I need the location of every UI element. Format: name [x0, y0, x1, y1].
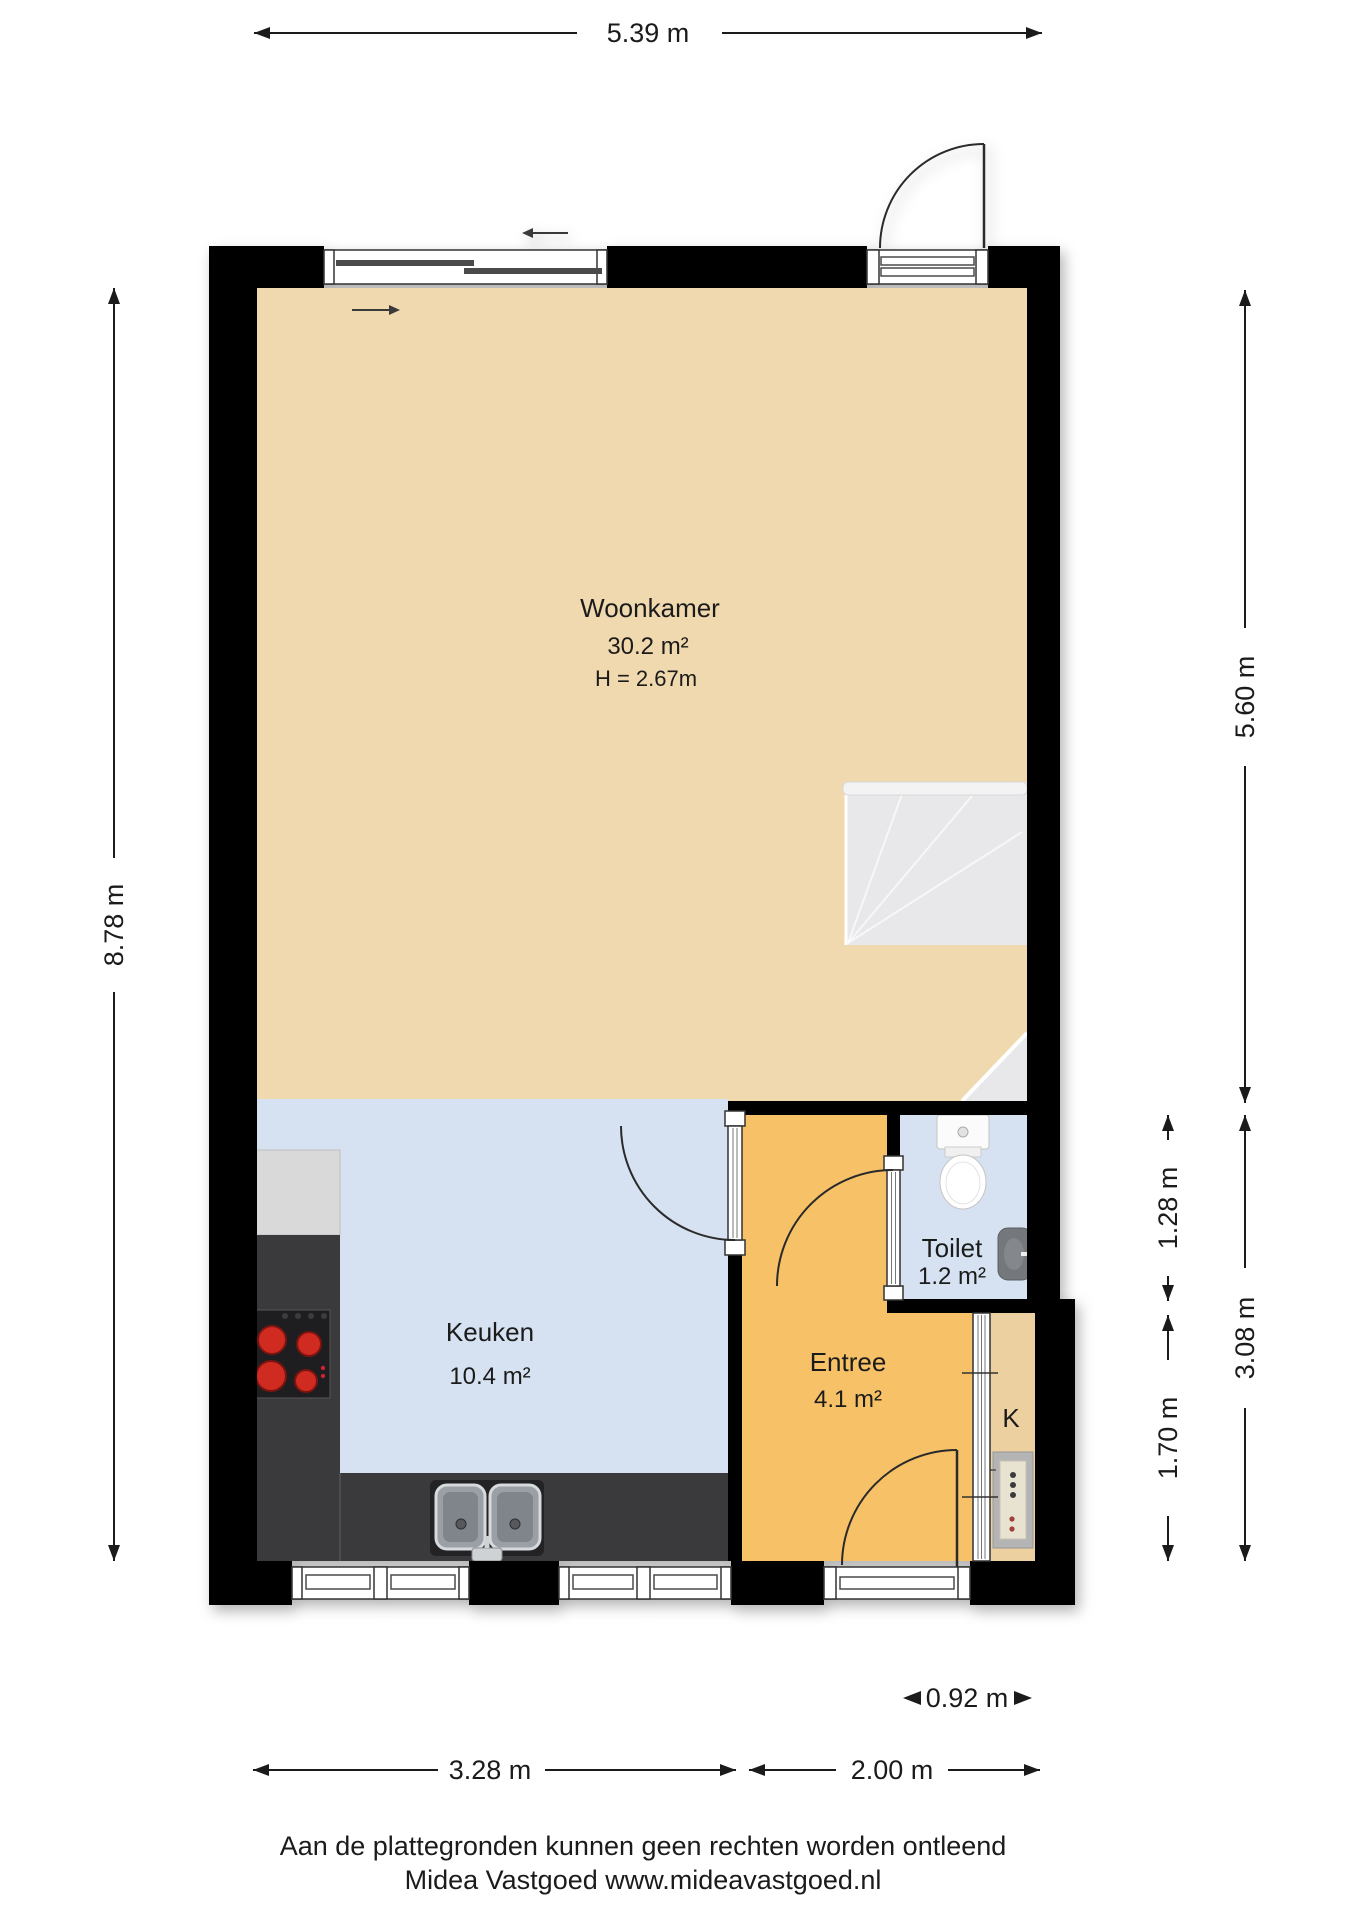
- window-glazing: [391, 1575, 455, 1589]
- window-post: [459, 1567, 469, 1599]
- dimension-left-height: 8.78 m: [99, 288, 129, 1561]
- dimension-right-upper-label: 5.60 m: [1230, 656, 1260, 739]
- burner: [297, 1332, 321, 1356]
- faucet-icon: [472, 1548, 502, 1561]
- door-jamb: [725, 1240, 745, 1255]
- sink-icon: [430, 1480, 544, 1561]
- door-jamb: [884, 1156, 903, 1170]
- floorplan-drawing: Woonkamer 30.2 m² H = 2.67m Keuken 10.4 …: [209, 144, 1075, 1605]
- sink-drain: [456, 1519, 466, 1529]
- threshold-line: [881, 257, 974, 265]
- wall-bottom: [731, 1561, 824, 1605]
- woonkamer-label: Woonkamer: [580, 593, 720, 623]
- wall-right-lower: [1035, 1299, 1075, 1605]
- meter-dot: [1010, 1482, 1016, 1488]
- floorplan-canvas: Woonkamer 30.2 m² H = 2.67m Keuken 10.4 …: [0, 0, 1358, 1920]
- dimension-bottom-keuken-label: 3.28 m: [449, 1755, 532, 1785]
- entree-area: 4.1 m²: [814, 1386, 882, 1413]
- burner: [258, 1326, 286, 1354]
- wall-bottom: [970, 1561, 1075, 1605]
- dimension-bottom-keuken: 3.28 m: [253, 1755, 736, 1785]
- dimension-right-lower-total: 3.08 m: [1230, 1115, 1260, 1561]
- cooktop-knob: [295, 1313, 301, 1319]
- door-leaf-closed: [887, 1170, 900, 1286]
- dimension-toilet-depth: 1.28 m: [1153, 1115, 1183, 1301]
- meter-dot: [1010, 1492, 1016, 1498]
- window-frame: [324, 250, 607, 284]
- window-glazing: [654, 1575, 717, 1589]
- meter-dot-red: [1009, 1526, 1014, 1531]
- sink-drain: [510, 1519, 520, 1529]
- window-glazing: [573, 1575, 633, 1589]
- wall-top: [607, 246, 867, 288]
- window-post: [597, 250, 607, 284]
- cooktop-icon: [253, 1310, 330, 1398]
- door-jamb: [884, 1286, 903, 1300]
- dimension-left-label: 8.78 m: [99, 884, 129, 967]
- dimension-top-width: 5.39 m: [254, 18, 1042, 48]
- door-jamb: [725, 1111, 745, 1126]
- wall-toilet-bottom: [887, 1299, 1035, 1313]
- entree-label: Entree: [810, 1347, 887, 1377]
- window-post: [292, 1567, 302, 1599]
- dimension-right-upper: 5.60 m: [1230, 290, 1260, 1103]
- door-top: [867, 144, 988, 284]
- door-jamb: [824, 1567, 836, 1599]
- window-mullion: [374, 1567, 387, 1599]
- wall-left: [209, 246, 257, 1605]
- sliding-panel: [464, 268, 602, 274]
- burner: [295, 1370, 317, 1392]
- window-bottom-right: [559, 1567, 731, 1599]
- door-threshold: [867, 250, 988, 284]
- meter-dot-red: [1009, 1516, 1014, 1521]
- keuken-area: 10.4 m²: [449, 1363, 530, 1390]
- footer-disclaimer: Aan de plattegronden kunnen geen rechten…: [280, 1831, 1007, 1861]
- dimension-top-label: 5.39 m: [607, 18, 690, 48]
- dimension-toilet-label: 1.28 m: [1153, 1167, 1183, 1250]
- dimension-bottom-entree: 2.00 m: [749, 1755, 1040, 1785]
- stairs-handrail-lip: [843, 782, 1027, 795]
- door-jamb: [976, 250, 988, 284]
- wall-keuken-entree: [728, 1247, 742, 1561]
- window-post: [721, 1567, 731, 1599]
- dimension-bottom-entree-label: 2.00 m: [851, 1755, 934, 1785]
- slide-direction-left-icon: [522, 228, 568, 238]
- door-jamb: [867, 250, 879, 284]
- woonkamer-area: 30.2 m²: [607, 633, 688, 660]
- cooktop-knob: [308, 1313, 314, 1319]
- footer: Aan de plattegronden kunnen geen rechten…: [280, 1831, 1007, 1895]
- toilet-label: Toilet: [922, 1233, 983, 1263]
- dimension-right-lower-label: 3.08 m: [1230, 1297, 1260, 1380]
- kitchen-cabinet: [252, 1150, 340, 1235]
- dimension-kast-label: 1.70 m: [1153, 1397, 1183, 1480]
- window-post: [324, 250, 334, 284]
- window-post: [559, 1567, 569, 1599]
- sink-basin-inner: [443, 1492, 478, 1542]
- wall-bottom: [209, 1561, 292, 1605]
- wall-bottom: [469, 1561, 559, 1605]
- door-leaf-closed: [728, 1126, 742, 1240]
- wall-entree-toilet: [887, 1101, 900, 1163]
- window-mullion: [637, 1567, 650, 1599]
- door-jamb: [958, 1567, 970, 1599]
- cooktop-knob: [321, 1313, 327, 1319]
- stairs-flight: [845, 782, 1027, 945]
- dimension-bottom-kast-label: 0.92 m: [926, 1683, 1009, 1713]
- cooktop-indicator: [321, 1366, 325, 1370]
- floorplan-page: Woonkamer 30.2 m² H = 2.67m Keuken 10.4 …: [0, 0, 1358, 1920]
- woonkamer-floor: [257, 288, 1027, 1101]
- sliding-panel: [336, 260, 474, 266]
- window-bottom-left: [292, 1567, 469, 1599]
- wall-interior-horizontal: [728, 1101, 1035, 1115]
- sink-basin-inner: [497, 1492, 533, 1542]
- cooktop-knob: [282, 1313, 288, 1319]
- door-swing-arc: [880, 144, 984, 248]
- kast-label: K: [1002, 1403, 1020, 1433]
- dimension-bottom-kast: 0.92 m: [903, 1683, 1032, 1713]
- wall-right-upper: [1027, 246, 1060, 1313]
- meter-dot: [1010, 1472, 1016, 1478]
- keuken-label: Keuken: [446, 1317, 534, 1347]
- window-glazing: [306, 1575, 370, 1589]
- woonkamer-ceiling-height: H = 2.67m: [595, 666, 697, 691]
- meter-box: [988, 1452, 1033, 1548]
- dimension-kast-depth: 1.70 m: [1153, 1315, 1183, 1561]
- threshold-line: [881, 268, 974, 276]
- toilet-area: 1.2 m²: [918, 1263, 986, 1290]
- toilet-flush-button: [958, 1127, 968, 1137]
- cooktop-indicator: [321, 1374, 325, 1378]
- burner: [256, 1361, 286, 1391]
- toilet-bowl: [940, 1155, 986, 1209]
- threshold-line: [840, 1577, 954, 1589]
- footer-company: Midea Vastgoed www.mideavastgoed.nl: [405, 1865, 882, 1895]
